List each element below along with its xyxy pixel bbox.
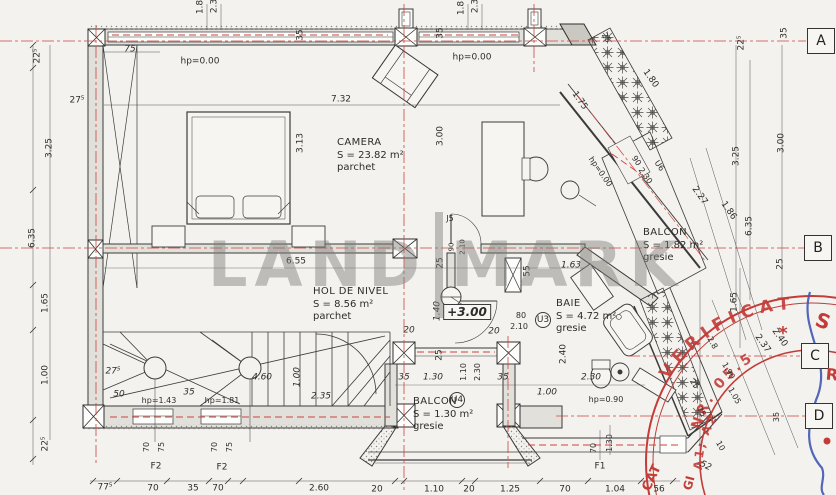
dim-label: 90 (630, 155, 642, 168)
dim-label: 35 (773, 412, 781, 422)
dim-label: 70 (211, 442, 219, 452)
dim-label: 35 (781, 27, 790, 38)
dim-label: 1.00 (42, 365, 51, 385)
dim-label: 2.37 (753, 333, 772, 355)
dim-label: 35 (437, 27, 446, 38)
dim-label: 25 (688, 378, 700, 391)
dim-label: 22⁵ (42, 436, 51, 451)
room-area: S = 23.82 m² (337, 150, 404, 163)
dim-label: 1.86 (719, 200, 738, 222)
dim-label: 1.8 (197, 0, 206, 14)
dim-label: 1.04 (605, 486, 625, 495)
window-code: F1 (595, 463, 606, 472)
dim-label: 1.30 (423, 374, 443, 383)
dim-label: 6.35 (746, 216, 755, 236)
watermark-bar (435, 212, 443, 318)
dim-label: 10 (714, 440, 726, 453)
dim-label: 3.13 (297, 133, 306, 153)
sill-height-label: hp=0.90 (589, 396, 624, 404)
room-area: S = 1.30 m² (413, 409, 473, 422)
sill-height-label: hp=1.43 (142, 397, 177, 405)
dim-label: 2.40 (560, 344, 569, 364)
dim-label: 2.60 (309, 485, 329, 494)
dim-label: 35 (187, 485, 198, 494)
dim-label: 20 (371, 486, 382, 495)
dim-label: 75 (226, 442, 234, 452)
dim-label: 77⁵ (97, 484, 112, 493)
dim-label: 70 (559, 486, 570, 495)
window-code: F2 (151, 463, 162, 472)
room-finish: gresie (556, 323, 616, 336)
dim-label: 2.10 (510, 323, 528, 331)
dim-label: 70 (147, 485, 158, 494)
dim-label: 1.05 (726, 386, 742, 405)
dim-label: 1.10 (460, 363, 468, 381)
dim-label: 35 (398, 374, 409, 383)
dim-label: 2.3 (211, 0, 220, 13)
dim-label: 2.30 (637, 166, 654, 185)
dim-label: 50 (113, 391, 124, 400)
dim-label: 1.90 (720, 361, 736, 380)
dim-label: 2.8 (705, 335, 718, 350)
dim-label: 35 (183, 389, 194, 398)
dim-label: 25 (436, 349, 445, 360)
window-code: F2 (217, 464, 228, 473)
sill-height-label: hp=0.00 (453, 54, 492, 63)
dim-label: 70 (212, 485, 223, 494)
dim-label: 75 (695, 406, 707, 419)
dim-label: 1.8 (458, 1, 467, 15)
dim-label: 20 (463, 486, 474, 495)
room-finish: gresie (413, 421, 473, 434)
dim-label: 1.75 (570, 90, 589, 112)
room-name: CAMERA (337, 137, 404, 150)
dim-label: 35 (497, 374, 508, 383)
dim-label: 1.00 (537, 389, 557, 398)
watermark-right: MARK (451, 234, 684, 296)
room-name: BALCON (413, 396, 473, 409)
dim-label: 20 (403, 327, 414, 336)
dim-label: 7.32 (331, 96, 351, 105)
dim-label: 1.30 (606, 434, 614, 452)
dim-label: 20 (488, 328, 499, 337)
room-finish: parchet (337, 162, 404, 175)
dim-label: 3.25 (733, 146, 742, 166)
dim-label: 1.65 (42, 293, 51, 313)
dim-label: 4.60 (252, 374, 272, 383)
dim-label: 75 (124, 46, 135, 55)
room-label-balcon: BALCONS = 1.30 m²gresie (413, 396, 473, 434)
dim-label: 35 (297, 29, 306, 40)
sill-height-label: hp=0.00 (587, 156, 613, 189)
watermark: LAND MARK (208, 212, 684, 318)
dim-label: 2.35 (311, 393, 331, 402)
dim-label: 22⁵ (738, 35, 747, 50)
dim-label: 2.3 (472, 0, 481, 13)
grid-axis-letter-b: B (804, 235, 832, 261)
stamp-letter: GI (681, 475, 696, 492)
dim-label: 70 (590, 443, 598, 453)
dim-label: 25 (600, 32, 612, 45)
dim-label: 1.25 (500, 486, 520, 495)
dim-label: 3.25 (46, 138, 55, 158)
grid-axis-letter-d: D (805, 403, 833, 429)
dim-label: 3.00 (778, 133, 787, 153)
stamp-letter: * (778, 325, 787, 343)
stamp-letter: R (825, 366, 836, 383)
sill-height-label: hp=0.00 (181, 58, 220, 67)
dim-label: 25 (777, 258, 786, 269)
dim-label: 70 (143, 442, 151, 452)
stamp-letter: S (813, 309, 833, 333)
dim-label: 27⁵ (105, 368, 120, 377)
room-label-camera: CAMERAS = 23.82 m²parchet (337, 137, 404, 175)
dim-label: 27⁵ (69, 97, 84, 106)
grid-axis-letter-a: A (807, 28, 835, 54)
dim-label: 1.80 (641, 68, 660, 90)
sill-height-label: hp=1.81 (205, 397, 240, 405)
dim-label: 1.00 (294, 367, 303, 387)
watermark-left: LAND (208, 234, 427, 296)
dim-label: 1.10 (424, 486, 444, 495)
dim-label: 22⁵ (34, 48, 43, 63)
dim-label: 2.27 (690, 185, 709, 207)
dim-label: 1.65 (731, 292, 740, 312)
grid-axis-letter-c: C (801, 343, 829, 369)
door-code: U6 (653, 159, 666, 173)
dim-label: .52 (696, 459, 713, 473)
dim-label: 6.35 (29, 228, 38, 248)
dim-label: 75 (158, 442, 166, 452)
dim-label: 3.00 (437, 126, 446, 146)
dim-label: 2.30 (474, 363, 482, 381)
floor-plan-page: VERIFICAT NR. 05.5 A1; A2 LAND MARK 22⁵3… (0, 0, 836, 495)
dim-label: 2.30 (581, 374, 601, 383)
